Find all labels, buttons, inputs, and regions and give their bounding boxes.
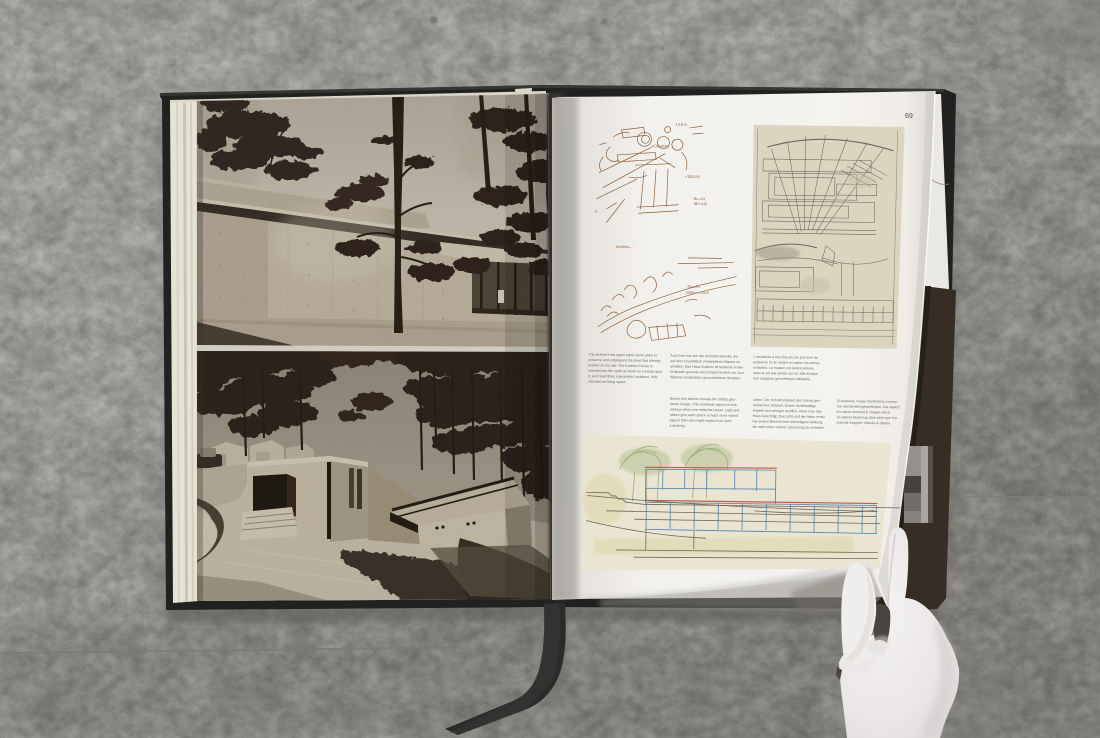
svg-text:+1B(1/4): +1B(1/4) — [685, 175, 700, 179]
svg-text:existants. La maison est autan: existants. La maison est autant enfouie — [753, 366, 814, 371]
svg-text:une sculpture géométrique habi: une sculpture géométrique habitable. — [753, 376, 811, 381]
svg-text:a drawing.: a drawing. — [669, 424, 685, 428]
svg-text:(BU+(8): (BU+(8) — [694, 202, 708, 206]
svg-text:13 B A..: 13 B A.. — [676, 123, 689, 127]
svg-text:A..: A.. — [594, 210, 599, 214]
svg-text:SKa.Po: SKa.Po — [687, 285, 700, 289]
svg-text:koshino—: koshino— — [616, 245, 633, 249]
svg-text:un aspect beaucoup plus varié: un aspect beaucoup plus varié que l'on — [837, 415, 898, 420]
svg-text:KOSHINO: KOSHINO — [651, 144, 669, 148]
svg-text:en nature donnent à chaque piè: en nature donnent à chaque pièce — [837, 410, 890, 415]
svg-text:pourrait imaginer d'après le d: pourrait imaginer d'après le dessin. — [836, 421, 890, 426]
svg-text:aspect than one might expect f: aspect than one might expect from such — [670, 418, 732, 423]
svg-text:-Bu.4 A: -Bu.4 A — [693, 197, 706, 201]
svg-text:1989.+—19.K: 1989.+—19.K — [685, 291, 709, 295]
svg-text:69: 69 — [905, 113, 913, 120]
svg-text:intended as living space.: intended as living space. — [588, 380, 626, 385]
